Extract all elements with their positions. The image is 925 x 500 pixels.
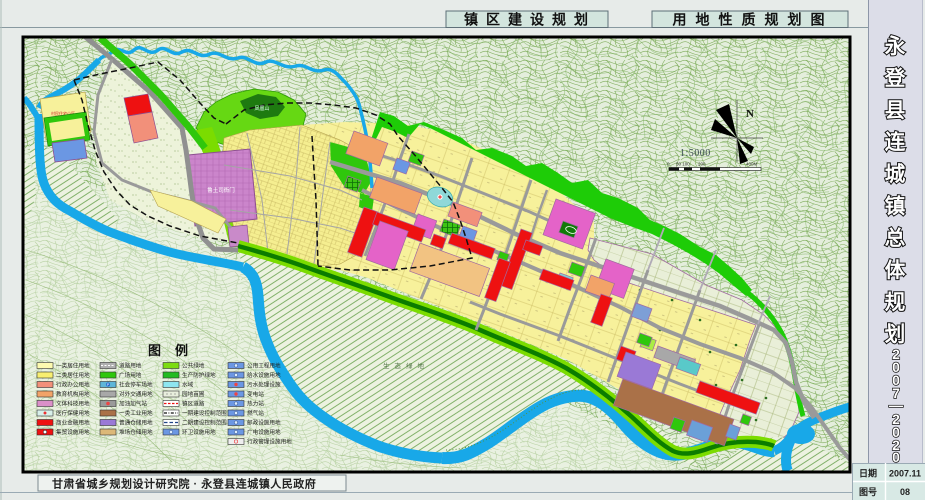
svg-text:0: 0 xyxy=(892,449,900,465)
svg-text:广场用地: 广场用地 xyxy=(119,371,142,379)
svg-text:一类居住用地: 一类居住用地 xyxy=(56,362,90,370)
svg-text:燃气站: 燃气站 xyxy=(247,409,264,417)
svg-text:体: 体 xyxy=(885,258,906,282)
svg-text:邮政设施用地: 邮政设施用地 xyxy=(247,419,281,427)
svg-text:N: N xyxy=(746,108,754,120)
svg-text:镇: 镇 xyxy=(885,194,906,218)
svg-text:水域: 水域 xyxy=(182,381,194,389)
svg-text:P: P xyxy=(107,382,110,387)
svg-text:商业金融用地: 商业金融用地 xyxy=(56,419,90,427)
svg-text:镇区建设规划: 镇区建设规划 xyxy=(464,12,596,28)
svg-text:县: 县 xyxy=(885,99,906,122)
svg-text:文体科技用地: 文体科技用地 xyxy=(56,400,90,408)
svg-text:甘肃省城乡规划设计研究院 · 永登县连城镇人民政府: 甘肃省城乡规划设计研究院 · 永登县连城镇人民政府 xyxy=(52,477,316,491)
svg-text:城: 城 xyxy=(885,162,906,186)
svg-text:永: 永 xyxy=(884,34,906,58)
svg-text:道路用地: 道路用地 xyxy=(119,362,142,370)
svg-text:总: 总 xyxy=(885,226,906,250)
svg-text:给水设施用地: 给水设施用地 xyxy=(247,371,281,379)
svg-text:登: 登 xyxy=(884,66,906,90)
svg-text:对外交通用地: 对外交通用地 xyxy=(119,390,153,398)
svg-text:变电站: 变电站 xyxy=(247,390,264,398)
svg-text:社会停车场地: 社会停车场地 xyxy=(119,381,153,389)
svg-text:污水处理设施: 污水处理设施 xyxy=(247,381,281,389)
svg-text:划: 划 xyxy=(885,322,906,346)
svg-text:08: 08 xyxy=(900,487,910,497)
svg-text:热力站: 热力站 xyxy=(247,400,264,408)
svg-text:行政管理设施用地: 行政管理设施用地 xyxy=(247,438,292,446)
svg-text:二期建设控制范围: 二期建设控制范围 xyxy=(182,419,227,427)
svg-text:1:5000: 1:5000 xyxy=(680,148,711,159)
svg-text:教育机构用地: 教育机构用地 xyxy=(56,390,90,398)
svg-text:普通仓储用地: 普通仓储用地 xyxy=(119,419,153,427)
svg-text:公共绿地: 公共绿地 xyxy=(182,362,205,370)
svg-text:日期: 日期 xyxy=(859,468,877,479)
svg-text:图例: 图例 xyxy=(148,343,202,358)
svg-text:一类工业用地: 一类工业用地 xyxy=(119,409,153,417)
svg-text:生产防护绿地: 生产防护绿地 xyxy=(182,371,216,379)
svg-text:二类居住用地: 二类居住用地 xyxy=(56,371,90,379)
svg-text:凤凰山: 凤凰山 xyxy=(254,105,269,112)
svg-text:规: 规 xyxy=(885,291,906,314)
svg-text:医疗保健用地: 医疗保健用地 xyxy=(56,409,90,417)
svg-text:用地性质规划图: 用地性质规划图 xyxy=(673,12,834,28)
svg-text:连: 连 xyxy=(885,130,906,154)
svg-text:生态绿地: 生态绿地 xyxy=(383,361,429,370)
svg-text:鲁土司衙门: 鲁土司衙门 xyxy=(207,186,235,194)
svg-text:环卫设施用地: 环卫设施用地 xyxy=(182,428,216,436)
svg-text:镇区道路: 镇区道路 xyxy=(182,400,205,408)
svg-text:2007.11: 2007.11 xyxy=(889,469,921,479)
svg-text:200: 200 xyxy=(698,162,706,167)
svg-text:50 100: 50 100 xyxy=(676,162,690,167)
svg-text:行政办公用地: 行政办公用地 xyxy=(56,381,90,389)
svg-text:加油加气站: 加油加气站 xyxy=(119,400,147,408)
svg-text:一期建设控制范围: 一期建设控制范围 xyxy=(182,409,227,417)
svg-text:图号: 图号 xyxy=(859,487,877,497)
svg-text:园地苗圃: 园地苗圃 xyxy=(182,390,205,398)
svg-text:400M: 400M xyxy=(746,162,758,167)
svg-text:公用工程用地: 公用工程用地 xyxy=(247,362,281,370)
svg-text:集贸设施用地: 集贸设施用地 xyxy=(56,428,90,436)
svg-text:广电设施用地: 广电设施用地 xyxy=(247,428,281,436)
svg-text:堆场仓储用地: 堆场仓储用地 xyxy=(119,428,153,436)
